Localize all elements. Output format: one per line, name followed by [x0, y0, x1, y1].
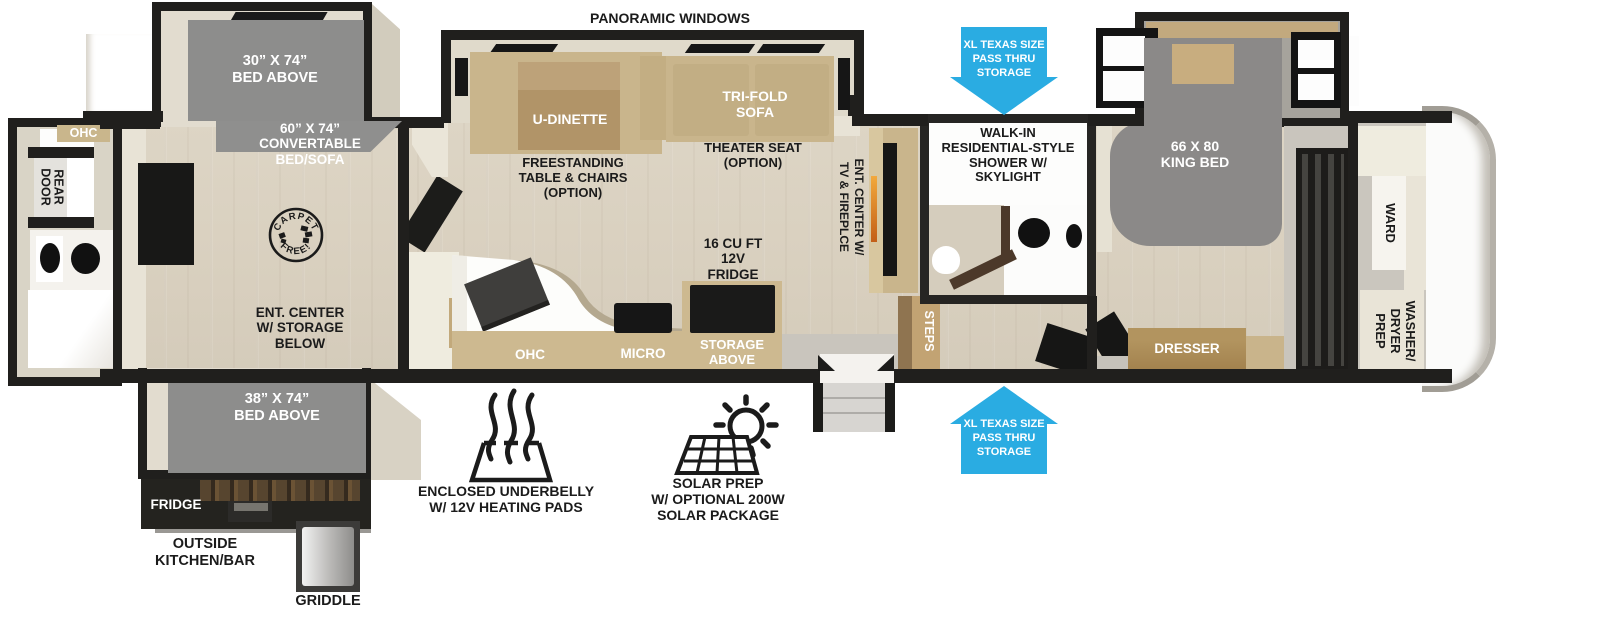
svg-text:PASS THRU: PASS THRU: [973, 53, 1036, 65]
svg-text:STORAGE: STORAGE: [977, 67, 1031, 79]
svg-text:XL TEXAS SIZE: XL TEXAS SIZE: [963, 39, 1044, 51]
svg-text:STORAGE: STORAGE: [977, 446, 1031, 458]
svg-text:XL TEXAS SIZE: XL TEXAS SIZE: [963, 418, 1044, 430]
svg-text:PASS THRU: PASS THRU: [973, 432, 1036, 444]
